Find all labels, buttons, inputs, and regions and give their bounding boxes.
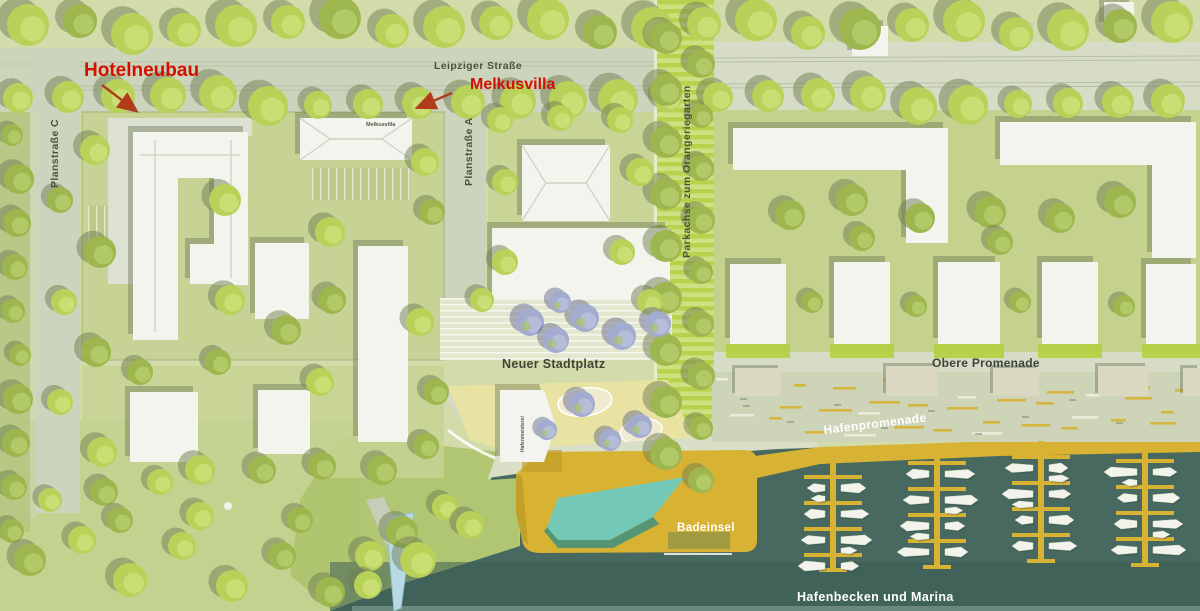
melkusvilla-building (295, 112, 412, 160)
pier-end (1131, 563, 1159, 567)
bench-dash (780, 406, 802, 409)
tree-highlight (712, 91, 730, 109)
tree-highlight (521, 321, 531, 331)
finger-pier (1012, 455, 1070, 459)
tree-highlight (420, 156, 437, 173)
tree-highlight (960, 97, 984, 121)
bench-dash (933, 429, 952, 432)
tree-highlight (632, 425, 640, 433)
tree-highlight (20, 16, 45, 41)
tree-highlight (500, 257, 516, 273)
tree-highlight (762, 89, 781, 108)
pier (1142, 445, 1148, 567)
tree-highlight (553, 301, 561, 309)
roof-label-melkusvilla: Melkusvilla (366, 122, 396, 128)
pavilion-2 (886, 366, 938, 396)
tree-highlight (1060, 21, 1085, 46)
square-1 (725, 258, 786, 344)
tree-highlight (226, 579, 245, 598)
boat (1104, 467, 1137, 477)
tree-highlight (696, 214, 713, 231)
tree-highlight (8, 306, 22, 320)
tree-highlight (277, 550, 294, 567)
tree-highlight (696, 370, 713, 387)
finger-pier (804, 501, 862, 505)
tree-highlight (282, 15, 302, 35)
tree-highlight (161, 87, 183, 109)
deck-olive-patch (668, 532, 730, 549)
tree-highlight (748, 11, 773, 36)
tree-highlight (574, 403, 583, 412)
pavilion-5 (1183, 368, 1200, 396)
tree-highlight (802, 26, 822, 46)
tree-highlight (436, 18, 461, 43)
building-d (253, 384, 310, 454)
bench-dash (769, 417, 782, 420)
tree-highlight (660, 31, 679, 50)
boat (945, 470, 975, 479)
tree-highlight (696, 423, 710, 437)
bench-dash (858, 412, 880, 415)
square-2 (829, 256, 890, 344)
tree-highlight (177, 540, 194, 557)
tree-highlight (477, 295, 491, 309)
bench-dash (743, 405, 750, 407)
bench-dash (844, 434, 876, 437)
tree-highlight (90, 346, 108, 364)
tree-highlight (1162, 94, 1182, 114)
finger-pier (1116, 485, 1174, 489)
tree-highlight (784, 209, 802, 227)
building-a (250, 237, 309, 319)
tree-highlight (465, 519, 482, 536)
deck-white-line (664, 553, 732, 555)
pier-end (923, 565, 951, 569)
tree-highlight (914, 212, 932, 230)
street-label-parkachse: Parkachse zum Orangeriegarten (681, 85, 693, 258)
tree-highlight (956, 12, 981, 37)
tree-highlight (615, 115, 631, 131)
annotation-melkusvilla: Melkusvilla (470, 76, 555, 93)
tree-highlight (635, 166, 652, 183)
finger-pier (1012, 533, 1070, 537)
tree-highlight (12, 393, 30, 411)
tree-highlight (295, 515, 311, 531)
tree-highlight (135, 367, 151, 383)
bench-dash (1047, 391, 1074, 394)
bench-dash (983, 421, 1000, 424)
tree-highlight (660, 239, 679, 258)
pavilion-3 (993, 368, 1039, 396)
square-4 (1042, 262, 1098, 344)
tree-highlight (861, 86, 883, 108)
tree-highlight (1114, 19, 1134, 39)
tree-highlight (696, 163, 712, 179)
finger-pier (1116, 459, 1174, 463)
bench-dash (833, 387, 856, 390)
tree-highlight (376, 464, 394, 482)
pavilion-4 (1098, 366, 1148, 396)
tree-highlight (660, 395, 679, 414)
bench-dash (740, 398, 747, 400)
tree-highlight (1010, 27, 1030, 47)
hotel-annex (190, 244, 214, 284)
tree-highlight (386, 24, 406, 44)
street-planstrasse-c (36, 48, 80, 513)
tree-highlight (16, 350, 29, 363)
boat (841, 535, 872, 545)
tree-highlight (541, 430, 548, 437)
tree-highlight (1062, 97, 1080, 115)
tree-highlight (421, 441, 437, 457)
boat (945, 495, 978, 505)
tree-highlight (1164, 13, 1189, 38)
tree-highlight (857, 233, 873, 249)
building-d (258, 390, 310, 454)
tree-highlight (89, 144, 107, 162)
square-5 (1146, 264, 1196, 344)
garden-strip (1038, 344, 1102, 358)
tree-highlight (362, 98, 380, 116)
tree-highlight (12, 217, 29, 234)
tree-highlight (10, 262, 26, 278)
building-b (358, 246, 408, 442)
tree-highlight (696, 475, 712, 491)
tree-highlight (852, 20, 877, 45)
water-far-edge (352, 606, 1200, 611)
parking-melkusvilla (312, 168, 410, 200)
tree-highlight (495, 115, 511, 131)
garden-strip (1142, 344, 1200, 358)
tree-highlight (178, 23, 198, 43)
square-3 (933, 256, 1000, 344)
tree-highlight (332, 9, 357, 34)
square-3 (938, 262, 1000, 344)
tree-highlight (55, 195, 71, 211)
bench-dash (787, 421, 794, 423)
place-label-stadtplatz: Neuer Stadtplatz (502, 357, 605, 371)
street-label-leipziger: Leipziger Straße (434, 60, 522, 72)
bench-dash (947, 407, 978, 410)
tree-highlight (500, 177, 516, 193)
tree-highlight (427, 207, 443, 223)
tree-highlight (12, 92, 30, 110)
boat (1153, 545, 1186, 555)
tree-highlight (660, 187, 679, 206)
tree-highlight (74, 14, 94, 34)
tree-highlight (490, 16, 510, 36)
bench-dash (975, 433, 982, 435)
tree-highlight (511, 93, 533, 115)
tree-highlight (24, 553, 43, 572)
tree-highlight (812, 88, 832, 108)
finger-pier (908, 487, 966, 491)
bench-dash (958, 396, 976, 399)
tree-highlight (211, 86, 234, 109)
tree-highlight (364, 550, 382, 568)
tree-highlight (696, 319, 712, 335)
building-c (125, 386, 198, 462)
water-deep (330, 562, 1200, 611)
tree-highlight (313, 99, 330, 116)
pier (934, 447, 940, 569)
bench-dash (716, 378, 728, 381)
site-plan-stage: Leipziger Straße Planstraße C Planstraße… (0, 0, 1200, 611)
building-a (255, 243, 309, 319)
tree-highlight (260, 98, 284, 122)
tree-highlight (280, 324, 298, 342)
tree-highlight (846, 193, 865, 212)
tree-highlight (594, 25, 614, 45)
tree-highlight (660, 83, 679, 102)
tree-highlight (698, 17, 718, 37)
bench-dash (928, 410, 935, 412)
tree-highlight (11, 437, 28, 454)
tree-highlight (660, 135, 679, 154)
bench-dash (908, 404, 928, 407)
bench-dash (1072, 416, 1098, 419)
tree-highlight (411, 552, 433, 574)
tree-highlight (660, 343, 679, 362)
street-label-planstrasse-a: Planstraße A (463, 117, 475, 186)
bench-dash (1022, 416, 1029, 418)
tree-highlight (363, 579, 380, 596)
tree-highlight (94, 245, 113, 264)
place-label-badeinsel: Badeinsel (677, 522, 735, 534)
tree-highlight (195, 510, 212, 527)
garden-strip (830, 344, 894, 358)
boat (1002, 489, 1033, 499)
tree-highlight (650, 323, 659, 332)
square-1 (730, 264, 786, 344)
tree-highlight (62, 90, 81, 109)
bench-dash (1069, 399, 1076, 401)
place-label-hafenbecken: Hafenbecken und Marina (797, 590, 954, 604)
finger-pier (804, 527, 862, 531)
bench-dash (997, 399, 1026, 402)
tree-highlight (911, 98, 934, 121)
bench-dash (1111, 419, 1126, 422)
tree-highlight (995, 237, 1011, 253)
tree-highlight (327, 294, 344, 311)
tree-highlight (9, 482, 25, 498)
bench-dash (1061, 427, 1078, 430)
tree-highlight (99, 486, 116, 503)
tree-highlight (155, 477, 171, 493)
tree-highlight (696, 58, 713, 75)
tree-highlight (13, 173, 31, 191)
tree-highlight (696, 267, 710, 281)
pavilion-4 (1095, 363, 1148, 396)
tree-highlight (617, 247, 633, 263)
tree-highlight (124, 25, 149, 50)
tree-highlight (1013, 98, 1030, 115)
tree-highlight (324, 226, 342, 244)
bench-dash (794, 384, 806, 387)
tree-highlight (257, 464, 274, 481)
roof-label-hafenmeisterei: Hafenmeisterei (520, 416, 526, 452)
tree-highlight (576, 317, 586, 327)
bench-dash (834, 404, 841, 406)
pier-end (1027, 559, 1055, 563)
tree-highlight (696, 111, 710, 125)
tree-highlight (7, 526, 21, 540)
bench-dash (1150, 422, 1176, 425)
tree-highlight (55, 397, 71, 413)
bench-dash (730, 414, 754, 417)
tree-highlight (808, 297, 821, 310)
tree-highlight (555, 113, 571, 129)
bench-dash (1022, 424, 1050, 427)
tree-highlight (660, 447, 679, 466)
site-plan: Leipziger Straße Planstraße C Planstraße… (0, 0, 1200, 611)
tree-highlight (462, 95, 482, 115)
tree-highlight (1016, 297, 1029, 310)
street-label-planstrasse-c: Planstraße C (49, 119, 61, 188)
tree-highlight (219, 193, 238, 212)
bench-dash (1116, 422, 1123, 424)
hotel-annex (185, 238, 214, 284)
tree-highlight (1114, 195, 1133, 214)
tree-highlight (431, 387, 447, 403)
tree-highlight (224, 294, 242, 312)
square-5 (1141, 258, 1196, 344)
tree-highlight (59, 297, 75, 313)
finger-pier (1116, 511, 1174, 515)
tree-highlight (96, 446, 114, 464)
tree-highlight (613, 335, 623, 345)
tree-highlight (603, 439, 611, 447)
square-2 (834, 262, 890, 344)
tree-highlight (8, 130, 21, 143)
bench-dash (869, 401, 900, 404)
tree-highlight (540, 10, 565, 35)
bench-dash (1036, 402, 1054, 405)
tree-highlight (317, 460, 334, 477)
tree-highlight (324, 586, 342, 604)
tree-highlight (415, 316, 432, 333)
tree-highlight (912, 301, 925, 314)
fountain-dot (224, 502, 232, 510)
tree-highlight (315, 376, 332, 393)
garden-strip (726, 344, 790, 358)
finger-pier (804, 475, 862, 479)
pavilion-1 (732, 365, 781, 396)
boat (1153, 520, 1183, 529)
bench-dash (1125, 397, 1152, 400)
bench-dash (819, 409, 852, 412)
tree-highlight (984, 205, 1003, 224)
annotation-hotelneubau: Hotelneubau (84, 60, 199, 81)
tree-highlight (906, 18, 926, 38)
tree-highlight (1120, 301, 1133, 314)
tree-highlight (1112, 95, 1131, 114)
tree-highlight (77, 534, 94, 551)
house-mid (517, 139, 610, 221)
tree-highlight (548, 339, 557, 348)
tree-highlight (228, 17, 253, 42)
tree-highlight (213, 357, 229, 373)
bench-dash (1161, 411, 1174, 414)
tree-highlight (1054, 212, 1072, 230)
finger-pier (908, 461, 966, 465)
tree-highlight (194, 464, 212, 482)
tree-highlight (115, 515, 131, 531)
street-label-obere-promenade: Obere Promenade (932, 356, 1040, 370)
square-4 (1037, 256, 1098, 344)
boat (897, 548, 929, 557)
pavilion-2 (883, 363, 938, 396)
tree-highlight (45, 495, 59, 509)
pier (1038, 441, 1044, 563)
tree-highlight (124, 573, 144, 593)
building-b (353, 240, 408, 442)
pavilion-5 (1180, 365, 1200, 396)
pavilion-1 (735, 368, 781, 396)
